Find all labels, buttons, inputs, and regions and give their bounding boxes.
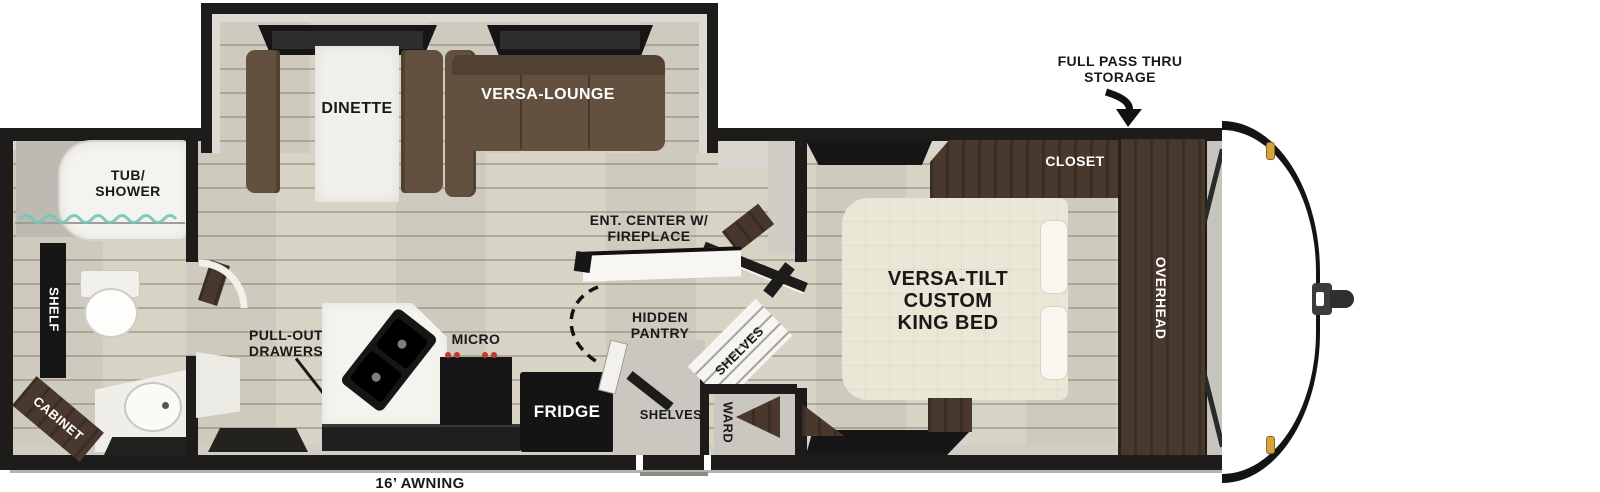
pass-thru-arrow-curve: [1106, 92, 1130, 113]
tub-shower-label: TUB/ SHOWER: [86, 167, 170, 199]
bed-pillow-2: [1040, 306, 1068, 380]
shower-curtain-rod: [15, 222, 185, 224]
hitch-coupler-notch: [1316, 292, 1324, 306]
toilet-bowl: [84, 288, 138, 338]
rear-wall: [0, 128, 13, 470]
burner-1: [445, 352, 451, 358]
burner-4: [491, 352, 497, 358]
entry-step: [640, 472, 708, 476]
dinette-table: [315, 46, 399, 202]
full-pass-thru-storage-label: FULL PASS THRU STORAGE: [1032, 53, 1208, 85]
hitch-arm: [1330, 290, 1354, 308]
pass-thru-arrow-head: [1116, 109, 1142, 127]
dinette-label: DINETTE: [312, 100, 402, 118]
bedroom-nightstand: [928, 398, 972, 432]
range-microwave: [440, 357, 512, 425]
versa-lounge-label: VERSA-LOUNGE: [468, 86, 628, 104]
bed-pillow-1: [1040, 220, 1068, 294]
awning-shadow-line: [10, 470, 1222, 473]
rv-floorplan: DINETTE VERSA-LOUNGE TUB/ SHOWER SHELF C…: [0, 0, 1600, 492]
burner-3: [482, 352, 488, 358]
bath-sink: [124, 382, 182, 432]
closet-label: CLOSET: [1028, 153, 1122, 169]
bath-mat: [104, 437, 186, 455]
bath-faucet: [162, 402, 169, 409]
ward-label: WARD: [720, 397, 735, 447]
bath-divider-wall-upper: [186, 128, 198, 262]
awning-label: 16’ AWNING: [330, 475, 510, 492]
ward-top-wall: [705, 384, 797, 394]
lounge-back-cushion: [452, 55, 665, 75]
bath-shelf-label: SHELF: [46, 274, 61, 344]
media-console: [583, 246, 741, 282]
king-bed-label: VERSA-TILT CUSTOM KING BED: [860, 268, 1036, 334]
under-counter-cabinet: [322, 424, 520, 451]
bedroom-wall-upper: [795, 128, 807, 262]
marker-light-top: [1266, 142, 1275, 160]
slideout-window-right-glass: [500, 31, 640, 49]
dinette-bench-left: [246, 50, 280, 193]
hidden-pantry-label: HIDDEN PANTRY: [614, 309, 706, 341]
micro-label: MICRO: [432, 331, 520, 347]
bedroom-window-top: [806, 141, 932, 165]
bottom-wall: [0, 455, 1225, 470]
fridge-label: FRIDGE: [520, 402, 614, 422]
marker-light-bottom: [1266, 436, 1275, 454]
entry-door-jamb-right: [704, 455, 711, 470]
pull-out-drawers-label: PULL-OUT DRAWERS: [238, 327, 334, 359]
ent-nook-right-face: [768, 141, 797, 253]
burner-2: [454, 352, 460, 358]
shelves-lower-label: SHELVES: [634, 408, 708, 423]
front-cap: [1222, 121, 1320, 483]
galley-entry-mat: [208, 428, 308, 452]
galley-side-cabinet: [196, 352, 240, 418]
entry-door-jamb-left: [636, 455, 643, 470]
dinette-bench-right: [401, 50, 443, 193]
overhead-label: OVERHEAD: [1153, 243, 1169, 353]
ent-center-label: ENT. CENTER W/ FIREPLACE: [578, 212, 720, 244]
media-console-speaker: [574, 251, 593, 273]
